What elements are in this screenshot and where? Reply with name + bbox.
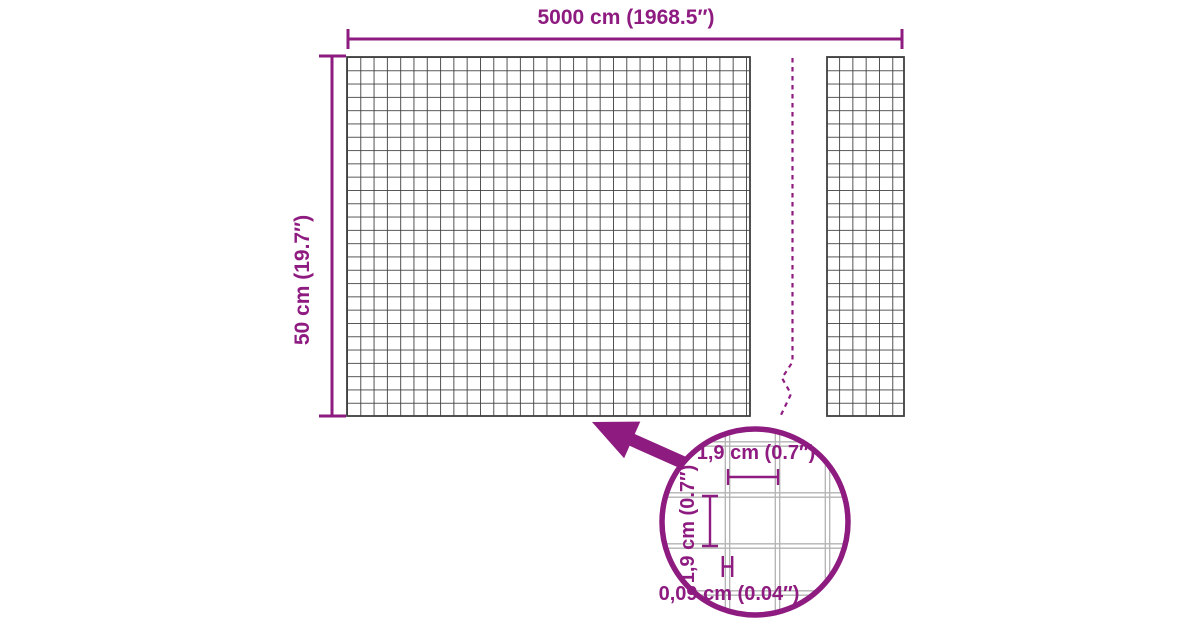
mesh-panel-left: [347, 57, 750, 416]
diagram-canvas: 5000 cm (1968.5″) 50 cm (19.7″) 1,9 cm (…: [0, 0, 1200, 630]
height-dimension-line: [319, 56, 346, 416]
break-line: [781, 58, 793, 416]
mesh-panel-right: [827, 57, 904, 416]
detail-height-label: 1,9 cm (0.7″): [677, 465, 699, 584]
width-dimension-line: [348, 29, 902, 49]
width-dimension-label: 5000 cm (1968.5″): [537, 6, 714, 29]
zoom-arrow-icon: [592, 422, 687, 469]
dimension-diagram: 5000 cm (1968.5″) 50 cm (19.7″) 1,9 cm (…: [0, 0, 1200, 630]
height-dimension-label: 50 cm (19.7″): [291, 215, 314, 345]
wire-thickness-label: 0,09 cm (0.04″): [659, 583, 800, 605]
detail-width-label: 1,9 cm (0.7″): [697, 442, 816, 464]
